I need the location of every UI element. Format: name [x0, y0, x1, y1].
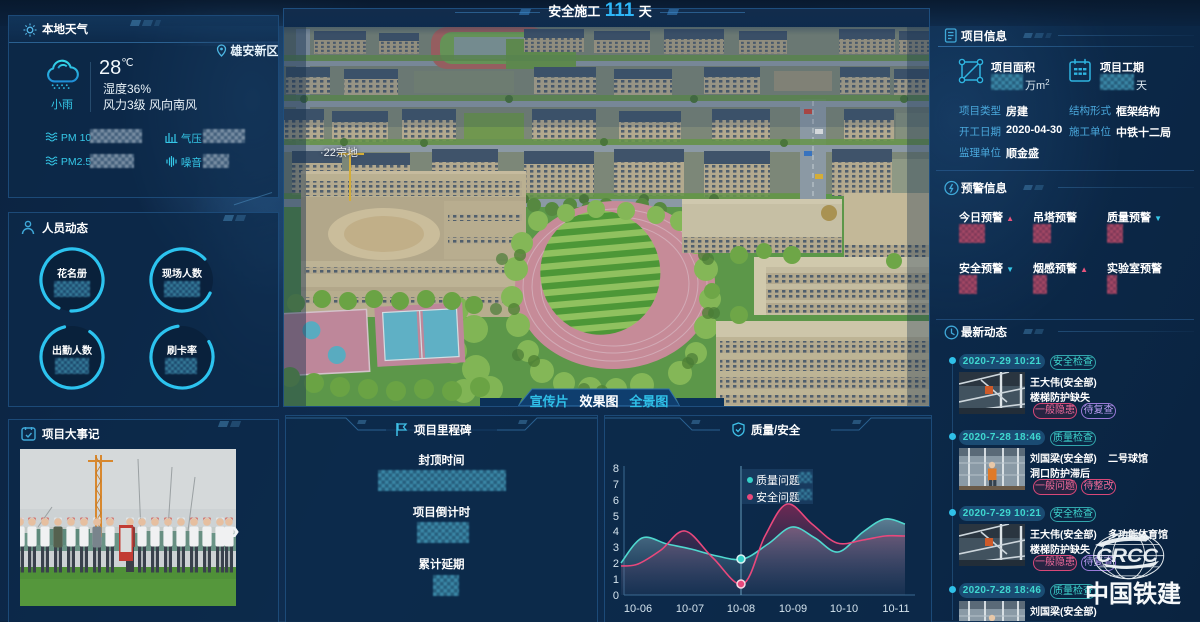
svg-text:2: 2 — [613, 558, 619, 570]
svg-text:4: 4 — [613, 526, 619, 538]
svg-text:10-09: 10-09 — [779, 603, 807, 615]
svg-text:8: 8 — [613, 463, 619, 475]
svg-text:10-07: 10-07 — [676, 603, 704, 615]
svg-text:0: 0 — [613, 590, 619, 602]
svg-text:6: 6 — [613, 495, 619, 507]
svg-text:3: 3 — [613, 542, 619, 554]
svg-text:10-08: 10-08 — [727, 603, 755, 615]
svg-text:5: 5 — [613, 511, 619, 523]
svg-text:1: 1 — [613, 574, 619, 586]
svg-text:中国铁建: 中国铁建 — [1085, 581, 1181, 608]
svg-text:10-11: 10-11 — [882, 603, 909, 615]
svg-text:7: 7 — [613, 479, 619, 491]
svg-text:10-10: 10-10 — [830, 603, 858, 615]
svg-text:10-06: 10-06 — [624, 603, 652, 615]
